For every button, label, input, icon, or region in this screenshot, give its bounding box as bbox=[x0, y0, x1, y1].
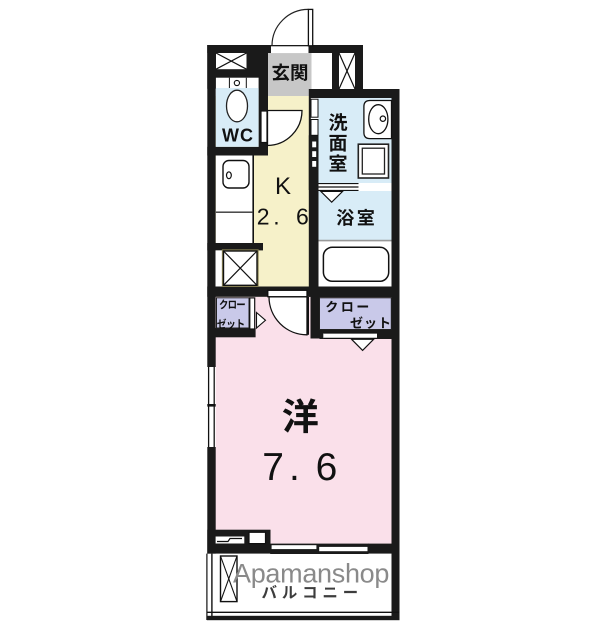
svg-text:.: . bbox=[273, 204, 279, 230]
svg-text:WC: WC bbox=[222, 126, 254, 146]
svg-text:6: 6 bbox=[316, 446, 338, 489]
svg-text:2: 2 bbox=[257, 204, 270, 230]
svg-text:.: . bbox=[289, 446, 300, 489]
svg-text:K: K bbox=[275, 173, 291, 200]
svg-text:Apamanshop: Apamanshop bbox=[233, 559, 389, 589]
svg-text:7: 7 bbox=[262, 446, 284, 489]
svg-text:6: 6 bbox=[296, 204, 309, 230]
